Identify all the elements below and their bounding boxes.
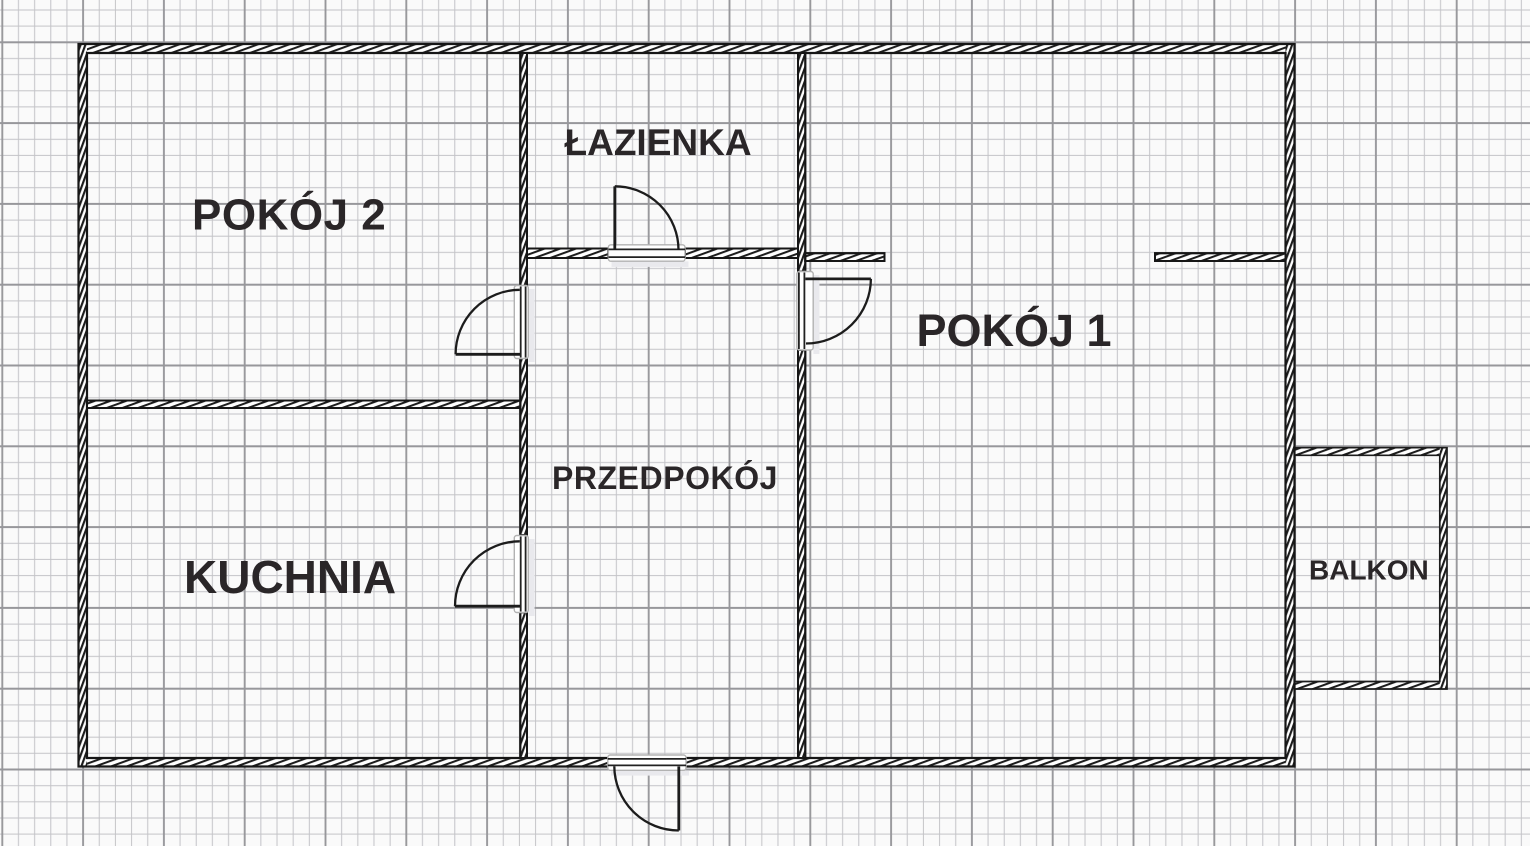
svg-text:PRZEDPOKÓJ: PRZEDPOKÓJ bbox=[552, 460, 778, 496]
svg-text:ŁAZIENKA: ŁAZIENKA bbox=[565, 122, 752, 163]
svg-text:POKÓJ 2: POKÓJ 2 bbox=[192, 190, 386, 240]
svg-text:KUCHNIA: KUCHNIA bbox=[184, 551, 396, 603]
svg-text:POKÓJ 1: POKÓJ 1 bbox=[917, 305, 1112, 356]
svg-text:BALKON: BALKON bbox=[1309, 554, 1429, 585]
